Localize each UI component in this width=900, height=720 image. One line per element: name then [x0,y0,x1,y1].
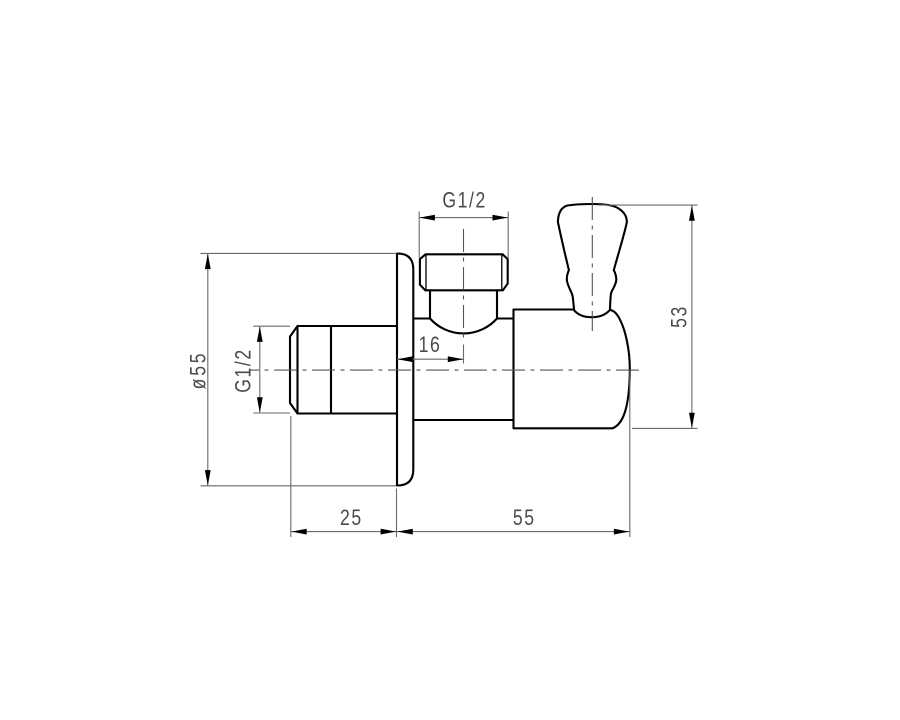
svg-text:55: 55 [513,506,536,530]
svg-text:53: 53 [668,305,692,328]
svg-text:G1/2: G1/2 [232,348,256,393]
svg-text:16: 16 [419,333,442,357]
svg-text:25: 25 [340,506,363,530]
svg-text:ø55: ø55 [187,351,211,390]
svg-text:G1/2: G1/2 [442,189,487,213]
